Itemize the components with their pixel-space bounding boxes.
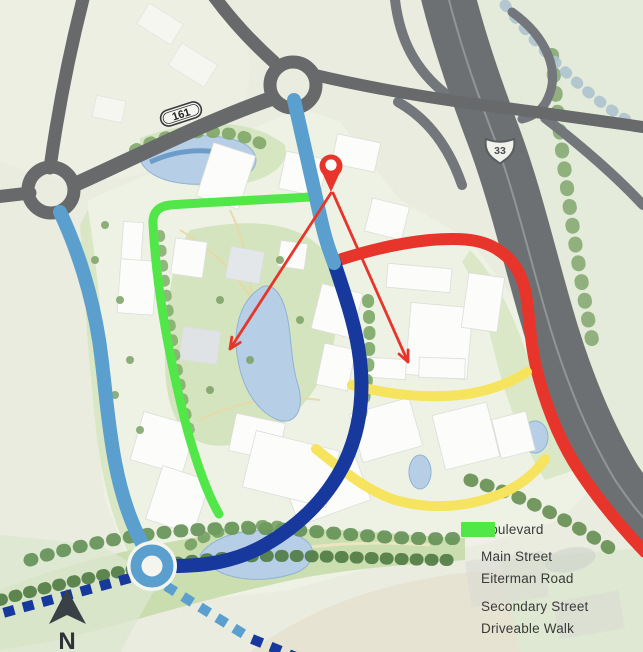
building — [225, 246, 264, 283]
building — [386, 263, 452, 292]
pond-mid — [409, 455, 431, 489]
legend: Boulevard Main Street Eiterman Road Seco… — [461, 522, 589, 636]
legend-label: Main Street — [481, 549, 552, 564]
site-plan-map: 161 33 N Boulevard Main Street Eiterman … — [0, 0, 643, 652]
compass-north-label: N — [58, 628, 75, 652]
legend-item-secondary-street: Secondary Street — [461, 599, 589, 614]
building — [179, 327, 221, 365]
legend-swatch-rect — [461, 522, 495, 537]
building — [171, 238, 208, 278]
legend-item-driveable-walk: Driveable Walk — [461, 621, 589, 636]
legend-label: Eiterman Road — [481, 571, 574, 586]
legend-item-main-street: Main Street — [461, 549, 589, 564]
building — [461, 273, 504, 332]
building — [419, 357, 466, 379]
building — [117, 259, 157, 315]
legend-item-eiterman-road: Eiterman Road — [461, 571, 589, 586]
legend-swatch — [461, 522, 495, 537]
route-33-label: 33 — [494, 145, 506, 157]
legend-label: Driveable Walk — [481, 621, 574, 636]
legend-label: Secondary Street — [481, 599, 589, 614]
highway-ramp — [398, 102, 462, 185]
building — [277, 240, 307, 270]
